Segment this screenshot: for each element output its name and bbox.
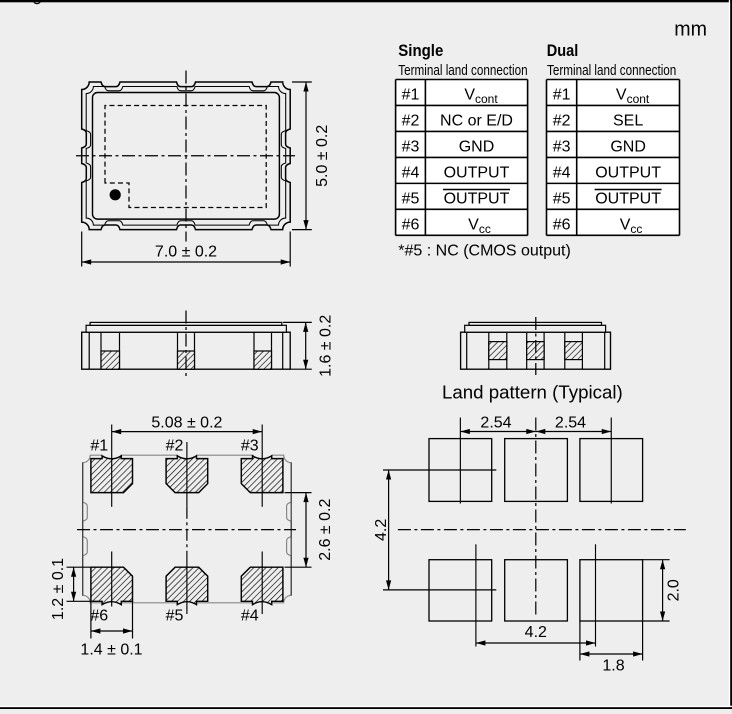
- svg-text:mm: mm: [674, 19, 707, 41]
- svg-text:5.08 ± 0.2: 5.08 ± 0.2: [151, 415, 222, 432]
- svg-text:#5: #5: [402, 190, 420, 207]
- svg-text:4.2: 4.2: [525, 624, 547, 641]
- svg-text:SEL: SEL: [613, 112, 643, 129]
- svg-text:#3: #3: [553, 138, 571, 155]
- svg-text:#4: #4: [553, 164, 571, 181]
- svg-text:#6: #6: [90, 608, 108, 625]
- svg-text:#2: #2: [166, 438, 184, 455]
- svg-text:OUTPUT: OUTPUT: [444, 190, 510, 207]
- svg-text:OUTPUT: OUTPUT: [444, 164, 510, 181]
- svg-text:OUTPUT: OUTPUT: [595, 164, 661, 181]
- svg-text:NC or E/D: NC or E/D: [440, 112, 513, 129]
- svg-text:2.54: 2.54: [555, 414, 586, 431]
- svg-text:1.2 ± 0.1: 1.2 ± 0.1: [50, 558, 67, 620]
- svg-text:*#5 : NC (CMOS output): *#5 : NC (CMOS output): [398, 242, 571, 259]
- svg-text:GND: GND: [459, 138, 495, 155]
- svg-text:#5: #5: [166, 608, 184, 625]
- svg-text:OUTPUT: OUTPUT: [595, 190, 661, 207]
- svg-text:#2: #2: [402, 112, 420, 129]
- svg-text:2.6 ± 0.2: 2.6 ± 0.2: [317, 499, 334, 561]
- svg-text:#6: #6: [402, 216, 420, 233]
- svg-text:2.54: 2.54: [480, 414, 511, 431]
- svg-text:Terminal land connection: Terminal land connection: [547, 62, 676, 79]
- svg-text:1.8: 1.8: [602, 658, 624, 675]
- svg-text:Terminal land connection: Terminal land connection: [398, 62, 527, 79]
- svg-text:1.6 ± 0.2: 1.6 ± 0.2: [318, 315, 335, 377]
- svg-text:#4: #4: [241, 608, 259, 625]
- svg-text:GND: GND: [610, 138, 646, 155]
- svg-text:7.0 ± 0.2: 7.0 ± 0.2: [155, 243, 217, 260]
- svg-text:#2: #2: [553, 112, 571, 129]
- svg-text:1.4 ± 0.1: 1.4 ± 0.1: [80, 642, 142, 659]
- svg-text:#1: #1: [90, 438, 108, 455]
- svg-text:#6: #6: [553, 216, 571, 233]
- svg-text:#4: #4: [402, 164, 420, 181]
- svg-text:#1: #1: [553, 86, 571, 103]
- svg-text:#3: #3: [241, 438, 259, 455]
- svg-text:Single: Single: [398, 42, 443, 60]
- svg-text:5.0 ± 0.2: 5.0 ± 0.2: [314, 125, 331, 187]
- svg-text:#5: #5: [553, 190, 571, 207]
- svg-text:2.0: 2.0: [666, 579, 683, 601]
- svg-text:#1: #1: [402, 86, 420, 103]
- svg-text:Dual: Dual: [547, 42, 579, 60]
- svg-text:Land pattern (Typical): Land pattern (Typical): [442, 382, 623, 403]
- svg-text:4.2: 4.2: [373, 519, 390, 541]
- svg-text:#3: #3: [402, 138, 420, 155]
